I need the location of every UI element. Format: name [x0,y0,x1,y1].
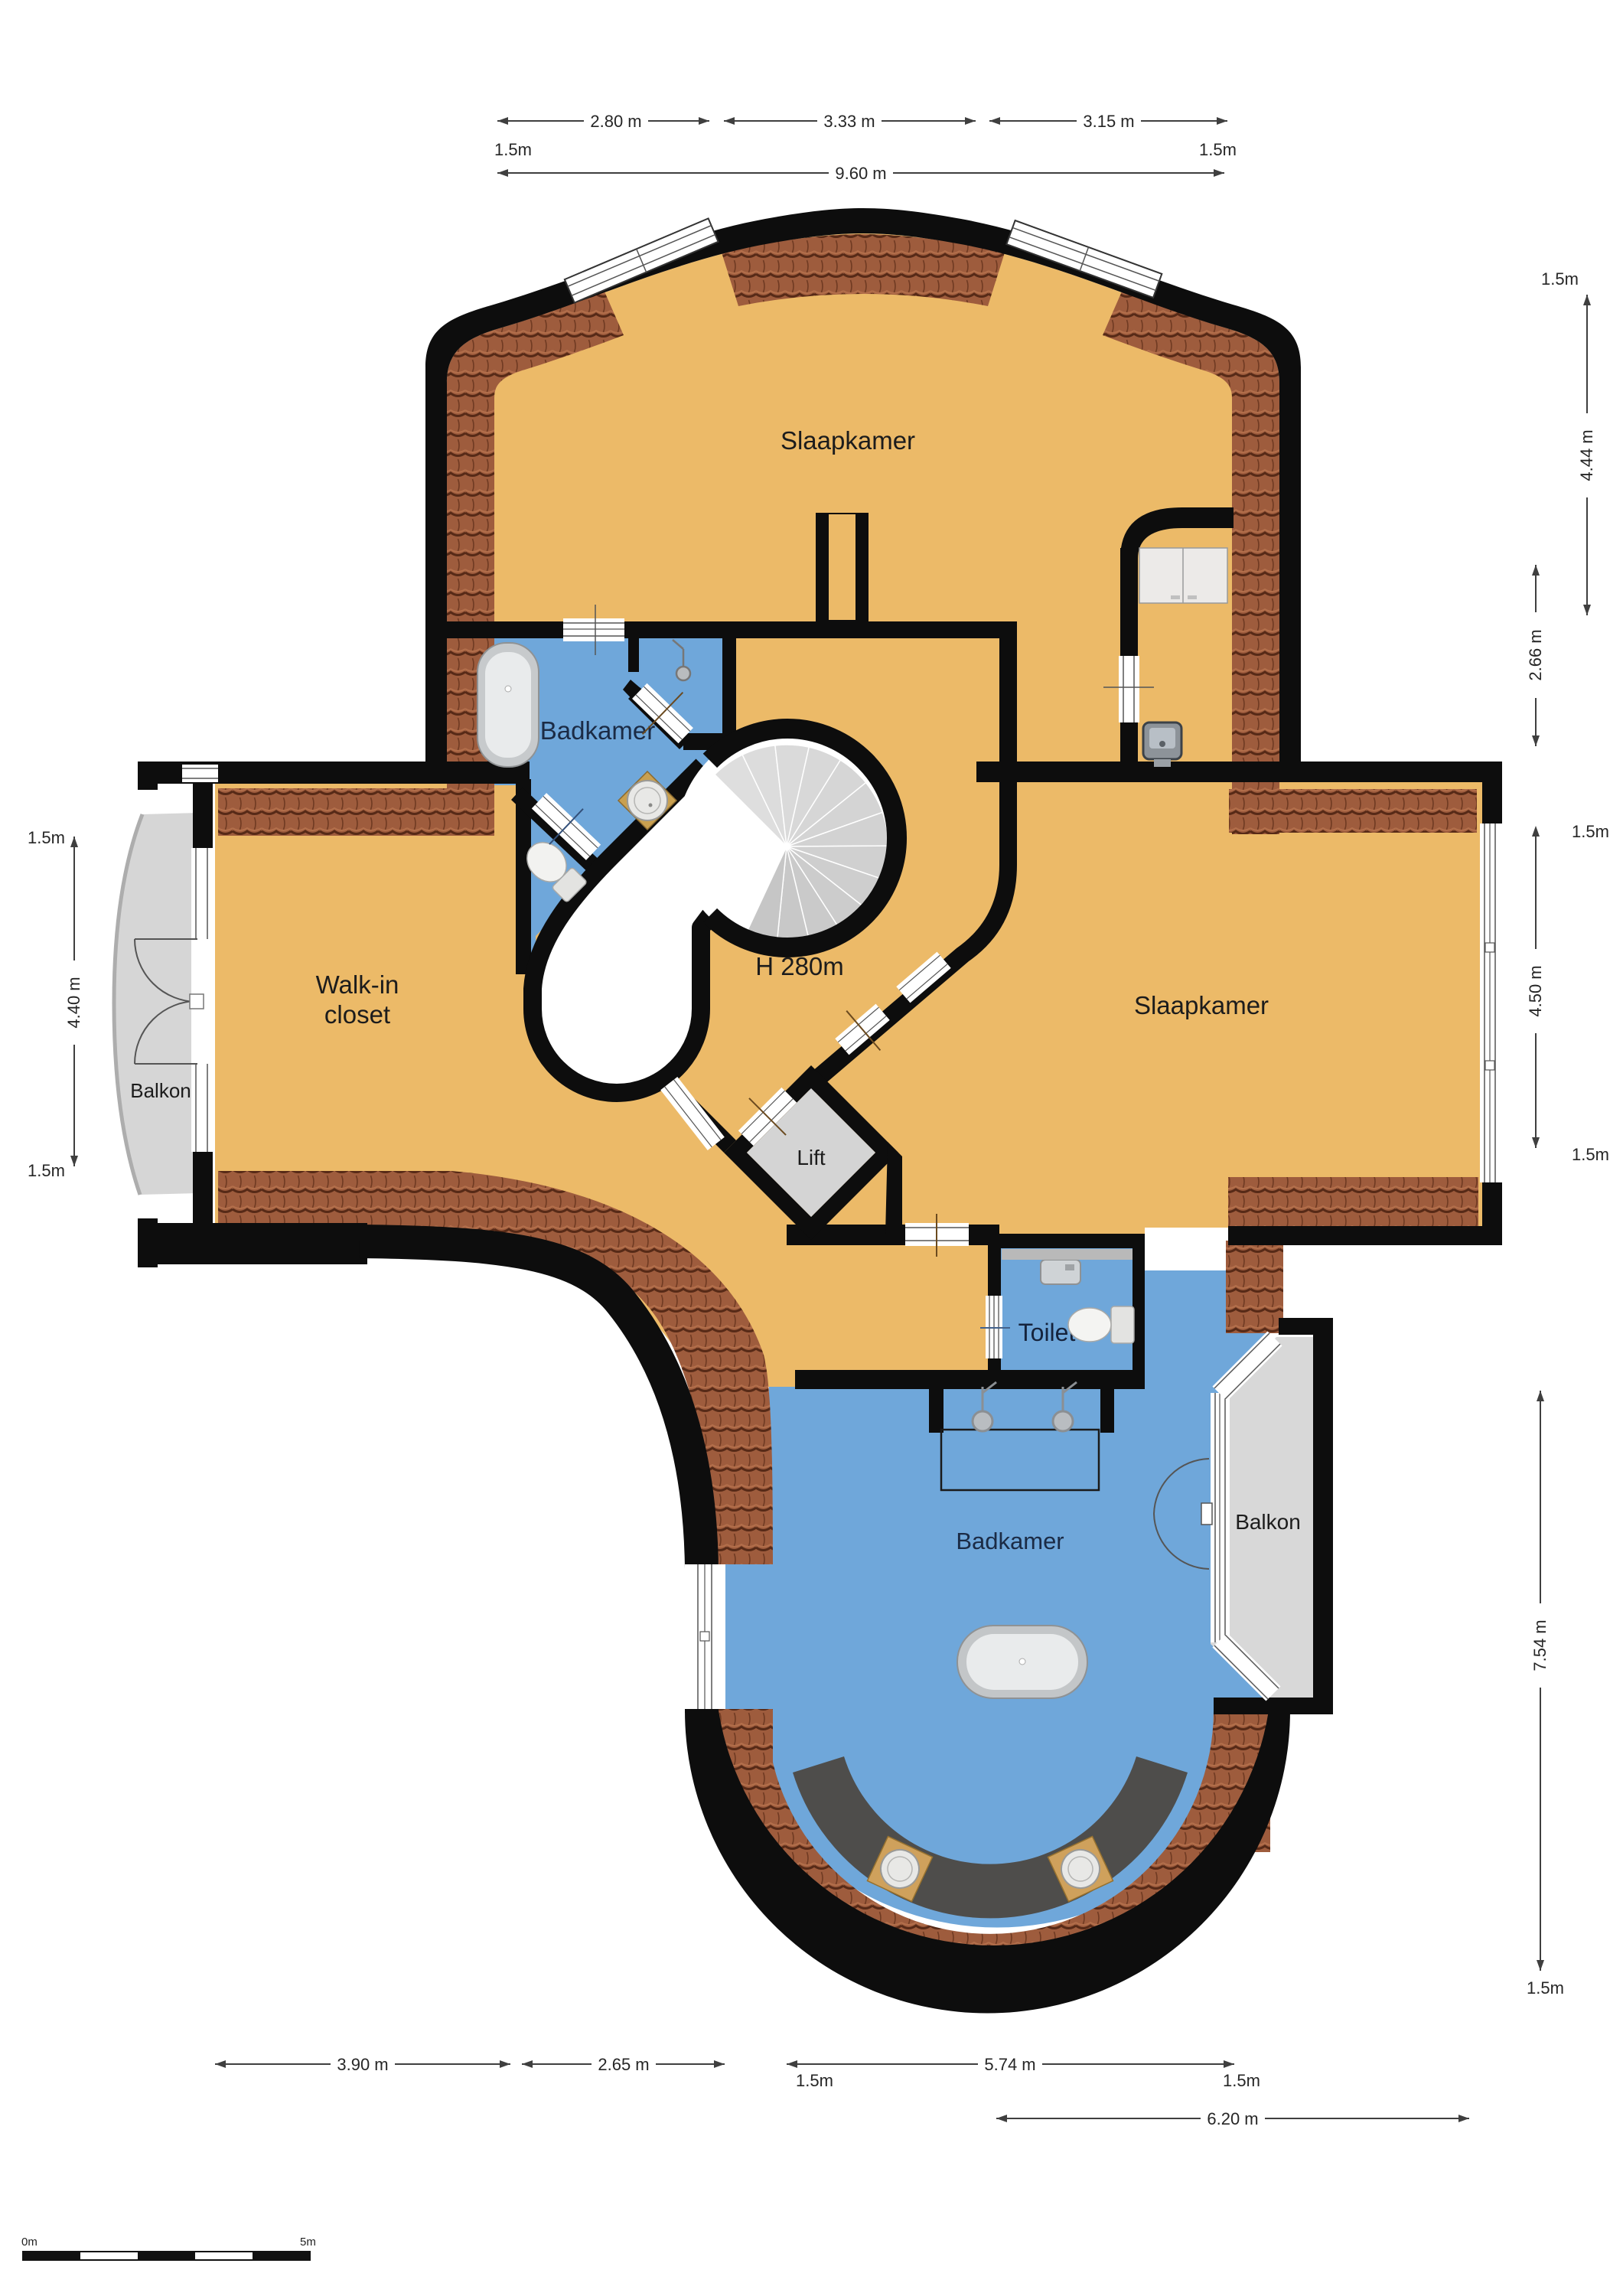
svg-text:1.5m: 1.5m [1572,822,1609,841]
svg-text:1.5m: 1.5m [494,140,532,159]
svg-text:Walk-in: Walk-in [316,970,399,999]
svg-text:4.40 m: 4.40 m [64,977,83,1028]
svg-text:1.5m: 1.5m [1223,2071,1260,2090]
svg-text:1.5m: 1.5m [1527,1978,1564,1998]
svg-text:0m: 0m [21,2236,37,2249]
svg-text:1.5m: 1.5m [28,828,65,847]
svg-text:7.54 m: 7.54 m [1530,1619,1550,1671]
svg-text:2.66 m: 2.66 m [1526,629,1545,680]
svg-text:2.65 m: 2.65 m [598,2055,649,2074]
svg-text:closet: closet [324,1000,390,1029]
svg-text:Slaapkamer: Slaapkamer [781,426,915,455]
svg-text:5m: 5m [300,2236,316,2249]
svg-text:3.15 m: 3.15 m [1083,112,1134,131]
svg-text:1.5m: 1.5m [1199,140,1237,159]
svg-text:Toilet: Toilet [1018,1319,1076,1346]
svg-text:3.33 m: 3.33 m [823,112,875,131]
svg-text:Badkamer: Badkamer [540,716,655,745]
svg-text:Balkon: Balkon [1235,1510,1301,1534]
svg-text:4.50 m: 4.50 m [1526,965,1545,1016]
svg-text:6.20 m: 6.20 m [1207,2109,1258,2128]
svg-text:1.5m: 1.5m [1541,269,1579,289]
svg-text:1.5m: 1.5m [1572,1145,1609,1164]
svg-text:3.90 m: 3.90 m [337,2055,388,2074]
svg-text:Balkon: Balkon [130,1079,191,1102]
svg-text:9.60 m: 9.60 m [835,164,886,183]
svg-text:Slaapkamer: Slaapkamer [1134,991,1269,1019]
svg-text:2.80 m: 2.80 m [590,112,641,131]
svg-text:Lift: Lift [797,1146,826,1169]
svg-text:Badkamer: Badkamer [956,1528,1064,1554]
svg-text:5.74 m: 5.74 m [984,2055,1035,2074]
svg-text:1.5m: 1.5m [796,2071,833,2090]
svg-text:1.5m: 1.5m [28,1161,65,1180]
svg-text:H 280m: H 280m [755,952,844,980]
svg-text:4.44 m: 4.44 m [1577,429,1596,481]
